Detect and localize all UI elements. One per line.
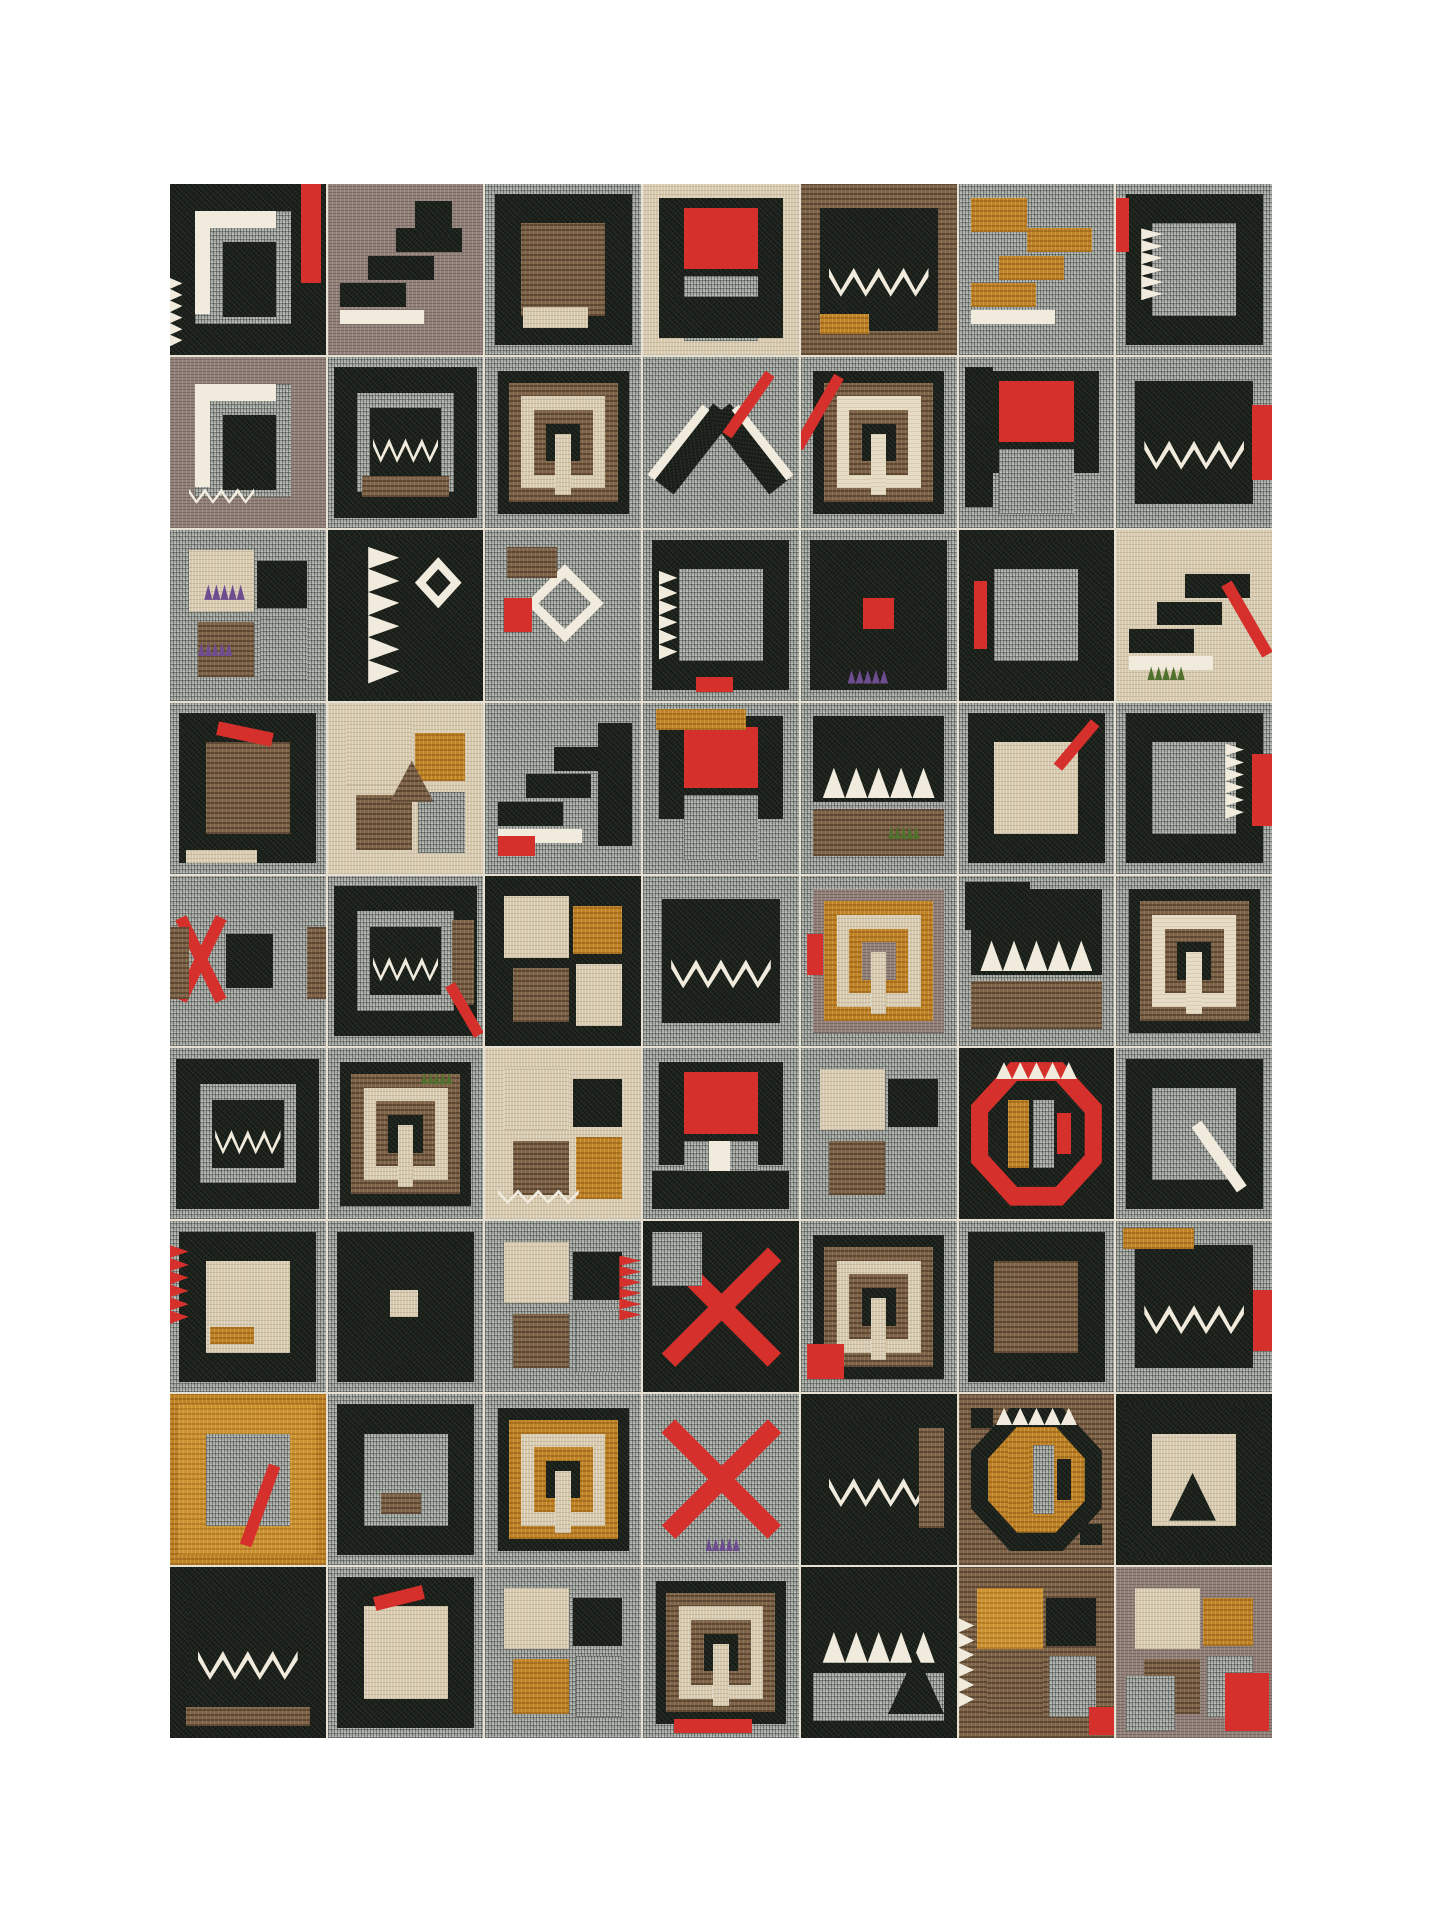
collage-tile [1116,530,1272,701]
collage-tile [170,184,326,355]
collage-tile [1116,1048,1272,1219]
motif-r-shape [888,1079,938,1127]
motif-r-shape [198,622,254,677]
motif-r-shape [1152,223,1236,315]
motif-r-shape [987,1659,1043,1714]
motif-r-shape [1033,1100,1053,1168]
collage-tile [328,1394,484,1565]
motif-r-shape [652,1171,789,1209]
motif-r-shape [652,1232,702,1287]
collage-tile [959,1221,1115,1392]
motif-r-shape [223,415,276,490]
collage-tile [643,184,799,355]
collage-tile [485,876,641,1047]
motif-r-shape [1225,1673,1269,1731]
motif-r-shape [977,1588,1042,1650]
motif-r-shape [971,310,1055,324]
motif-r-shape [206,742,290,834]
motif-r-shape [598,723,632,846]
collage-tile [485,184,641,355]
motif-r-shape [1116,198,1128,253]
collage-tile [643,876,799,1047]
collage-tile [643,1048,799,1219]
motif-r-shape [1027,228,1092,252]
motif-r-shape [871,1298,887,1360]
motif-r-shape [513,1659,569,1714]
motif-r-shape [223,242,276,317]
motif-r-shape [684,795,759,860]
collage-tile [328,1048,484,1219]
motif-r-shape [1126,1676,1176,1731]
motif-r-shape [381,1493,421,1514]
motif-tl-shape [959,1618,975,1707]
collage-tile [170,530,326,701]
motif-r-shape [807,1344,844,1378]
motif-r-shape [1135,1588,1200,1650]
motif-r-shape [999,449,1074,514]
motif-r-shape [206,1434,290,1526]
motif-r-shape [210,1327,254,1344]
motif-tu-shape [705,1538,739,1552]
motif-r-shape [513,1314,569,1369]
motif-r-shape [301,184,321,283]
motif-r-shape [820,1069,885,1131]
collage-tile [643,357,799,528]
collage-tile [328,1567,484,1738]
motif-r-shape [999,256,1064,280]
motif-r-shape [1129,629,1194,653]
collage-tile [328,703,484,874]
motif-r-shape [498,802,563,826]
motif-r-shape [696,677,733,692]
motif-r-shape [974,581,986,649]
motif-r-shape [829,1141,885,1196]
motif-r-shape [674,1719,752,1733]
collage-tile [328,876,484,1047]
collage-tile [801,1048,957,1219]
motif-r-shape [891,1137,938,1199]
motif-r-shape [504,896,569,958]
collage-tile [959,876,1115,1047]
motif-r-shape [346,723,411,785]
collage-tile [959,184,1115,355]
motif-r-shape [189,550,254,612]
collage-tile [643,1567,799,1738]
motif-r-shape [513,968,569,1023]
collage-tile [170,876,326,1047]
collage-tile [1116,876,1272,1047]
collage-tile [1116,1567,1272,1738]
collage-tile [801,703,957,874]
collage-tile [328,530,484,701]
motif-r-shape [307,927,326,999]
collage-tile [1116,703,1272,874]
collage-tile [170,1567,326,1738]
collage-tile [170,1048,326,1219]
collage-tile [485,1048,641,1219]
motif-r-shape [820,314,870,335]
collage-tile [643,1394,799,1565]
motif-r-shape [971,981,1102,1029]
collage-tile [959,357,1115,528]
motif-r-shape [576,1137,623,1199]
motif-r-shape [415,733,465,781]
collage-tile [801,530,957,701]
motif-r-shape [999,381,1074,443]
page: { "page": { "background": "#ffffff" }, "… [0,0,1445,1927]
collage-tile [1116,1221,1272,1392]
collage-tile [485,530,641,701]
collage-tile [1116,184,1272,355]
collage-tile [328,357,484,528]
motif-r-shape [684,727,759,789]
motif-r-shape [1157,602,1222,626]
motif-r-shape [340,537,471,694]
motif-r-shape [684,1072,759,1134]
motif-r-shape [415,201,452,235]
motif-r-shape [971,283,1036,307]
motif-r-shape [195,384,276,401]
motif-r-shape [526,774,591,798]
motif-r-shape [186,1707,311,1726]
collage-tile [801,1394,957,1565]
collage-tile [485,357,641,528]
motif-r-shape [186,850,258,864]
motif-r-shape [513,1141,569,1196]
motif-r-shape [1252,405,1272,480]
motif-r-shape [398,1125,414,1187]
motif-r-shape [555,434,571,496]
collage-tile [959,703,1115,874]
collage-tile [959,530,1115,701]
collage-tile [643,530,799,701]
motif-r-shape [656,709,746,730]
collage-tile [801,876,957,1047]
motif-r-shape [507,547,557,578]
motif-r-shape [195,211,276,228]
collage-tile [959,1394,1115,1565]
motif-r-shape [1252,754,1272,826]
collage-tile [643,703,799,874]
motif-tl-shape [170,278,182,346]
motif-r-shape [340,310,424,324]
motif-r-shape [1152,742,1236,834]
collage-tile [170,1221,326,1392]
motif-r-shape [573,906,623,954]
collage-tile [1116,357,1272,528]
collage-tile [485,1221,641,1392]
motif-r-shape [971,1408,993,1429]
collage-tile [170,357,326,528]
collage-tile [328,1221,484,1392]
collage-tile [170,1394,326,1565]
collage-tile [959,1567,1115,1738]
collage-tile [485,703,641,874]
motif-r-shape [684,208,759,270]
motif-r-shape [871,952,887,1014]
collage-tile [959,1048,1115,1219]
motif-r-shape [1089,1707,1114,1734]
motif-r-shape [573,1252,623,1300]
motif-r-shape [498,836,535,857]
artwork-collage [170,184,1272,1738]
motif-r-shape [390,1290,418,1317]
motif-r-shape [807,934,823,975]
motif-r-shape [364,1606,448,1698]
motif-r-shape [659,297,784,338]
collage-tile [801,184,957,355]
collage-tile [801,1567,957,1738]
motif-r-shape [573,1598,623,1646]
motif-r-shape [504,1069,569,1131]
motif-r-shape [919,1428,944,1527]
motif-r-shape [994,569,1078,661]
motif-r-shape [965,882,1030,930]
motif-r-shape [576,1310,623,1372]
motif-r-shape [260,619,307,681]
motif-r-shape [555,1471,571,1533]
motif-r-shape [257,561,307,609]
motif-r-shape [1057,1459,1071,1500]
motif-r-shape [871,434,887,496]
motif-r-shape [1008,1445,1028,1513]
motif-r-shape [1186,952,1202,1014]
motif-r-shape [1203,1598,1253,1646]
motif-r-shape [1057,1113,1071,1154]
motif-r-shape [971,198,1027,232]
motif-r-shape [362,476,449,497]
motif-r-shape [356,795,412,850]
collage-tile [801,357,957,528]
motif-tl-shape [619,1256,641,1321]
motif-r-shape [504,598,532,632]
motif-r-shape [521,223,605,315]
collage-tile [801,1221,957,1392]
motif-r-shape [1129,656,1213,670]
motif-r-shape [813,809,944,857]
motif-r-shape [1046,1598,1096,1646]
motif-r-shape [679,569,763,661]
motif-r-shape [1033,1445,1053,1513]
collage-tile [170,703,326,874]
motif-r-shape [368,256,433,280]
motif-r-shape [170,927,189,999]
collage-tile [485,1394,641,1565]
motif-r-shape [504,1588,569,1650]
motif-r-shape [576,1656,623,1718]
motif-r-shape [863,598,894,629]
collage-tile [328,184,484,355]
motif-r-shape [340,283,405,307]
motif-r-shape [1123,1228,1195,1249]
motif-r-shape [965,367,993,507]
motif-r-shape [994,1261,1078,1353]
collage-tile [485,1567,641,1738]
motif-r-shape [504,1242,569,1304]
motif-r-shape [576,964,623,1026]
collage-tile [643,1221,799,1392]
collage-tile [1116,1394,1272,1565]
motif-r-shape [523,307,588,328]
motif-r-shape [573,1079,623,1127]
motif-r-shape [1253,1290,1272,1352]
motif-r-shape [226,934,273,989]
motif-r-shape [1080,1524,1102,1545]
motif-r-shape [1008,1100,1028,1168]
motif-r-shape [713,1644,729,1706]
